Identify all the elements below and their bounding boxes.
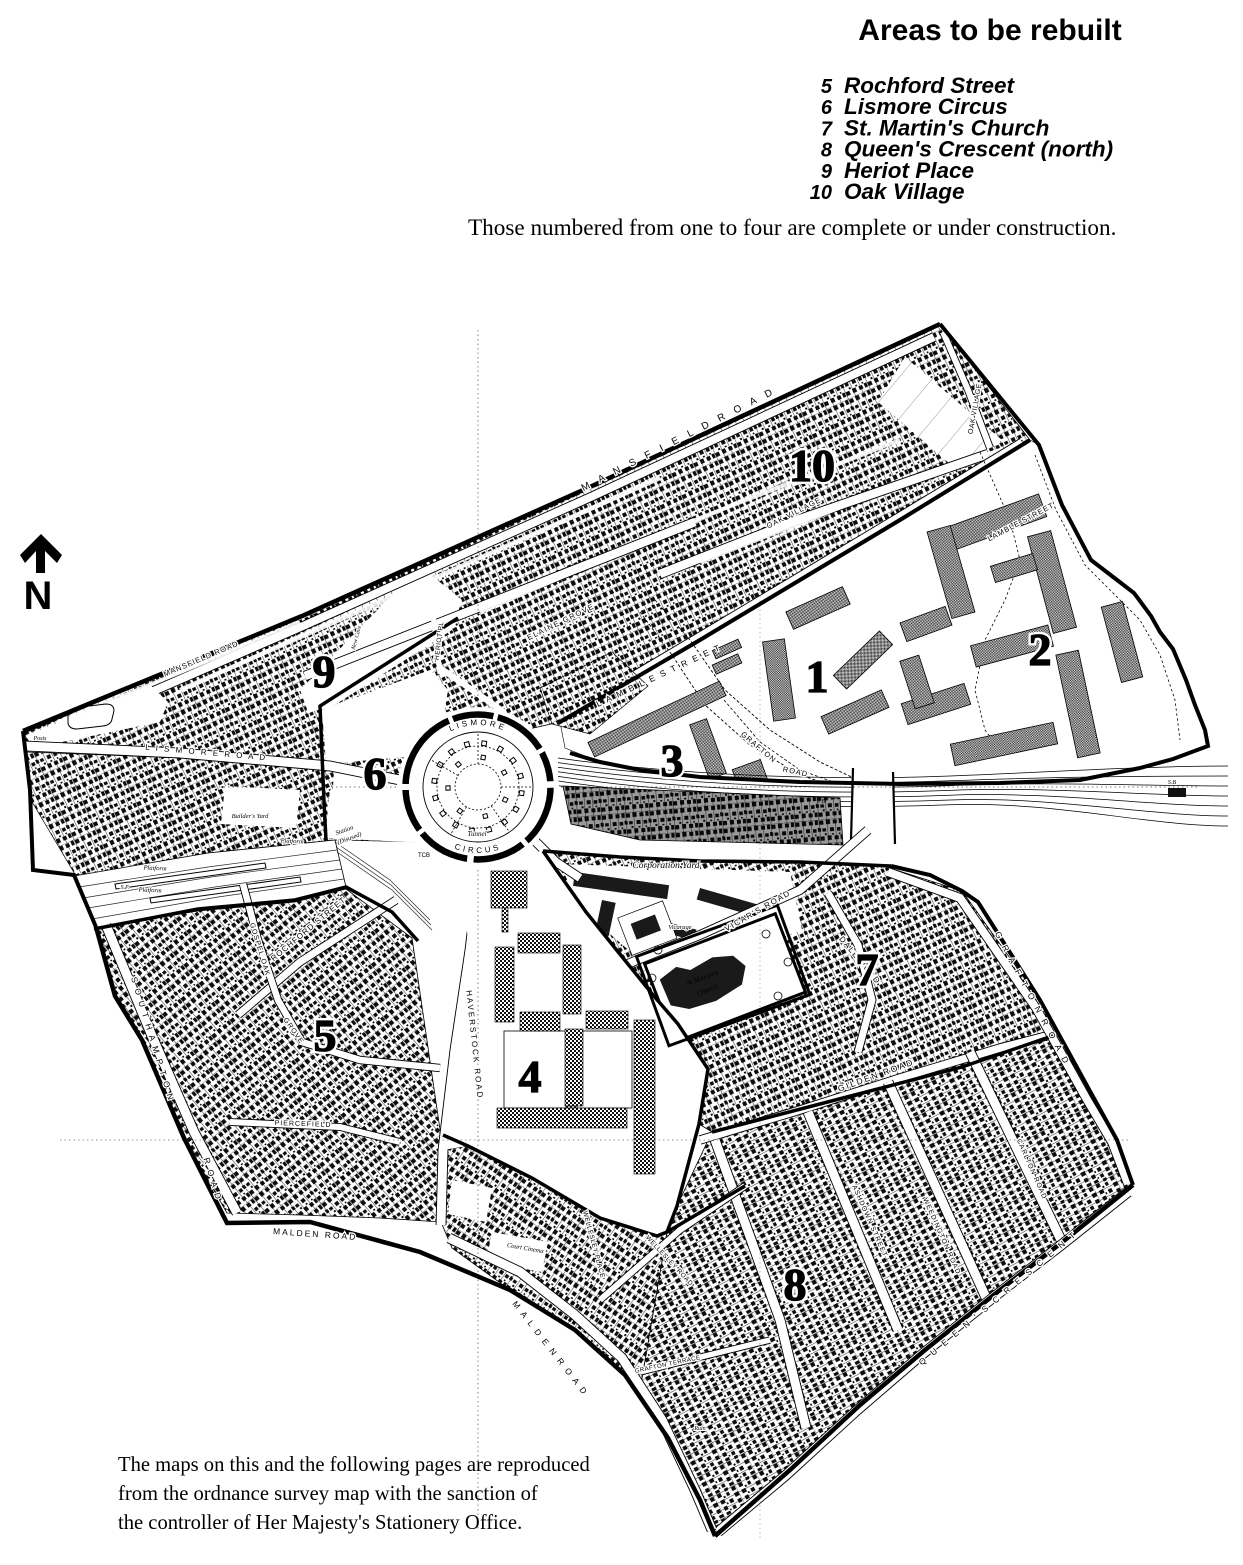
svg-text:10: 10 <box>789 440 835 491</box>
svg-text:Platform: Platform <box>142 864 167 872</box>
svg-text:S.B: S.B <box>1168 780 1177 786</box>
svg-text:9: 9 <box>313 646 336 697</box>
svg-text:Those numbered from one to fou: Those numbered from one to four are comp… <box>468 215 1116 241</box>
svg-text:4: 4 <box>519 1051 542 1102</box>
svg-text:2: 2 <box>1029 624 1052 675</box>
svg-text:Posts: Posts <box>32 736 47 742</box>
svg-text:Platform: Platform <box>279 837 304 845</box>
svg-text:10: 10 <box>810 182 832 204</box>
svg-text:6: 6 <box>821 97 833 119</box>
svg-text:Platform: Platform <box>137 886 162 894</box>
svg-text:5: 5 <box>314 1010 337 1061</box>
svg-text:N: N <box>24 574 53 618</box>
svg-text:TCB: TCB <box>418 853 430 859</box>
svg-text:7: 7 <box>856 944 879 995</box>
svg-text:The maps on this and the follo: The maps on this and the following pages… <box>118 1454 590 1476</box>
svg-text:1: 1 <box>806 651 829 702</box>
svg-text:S.P.: S.P. <box>121 885 130 891</box>
svg-text:Vicarage: Vicarage <box>668 924 691 931</box>
svg-text:Tunnel: Tunnel <box>467 830 486 838</box>
svg-text:the controller of Her Majesty': the controller of Her Majesty's Statione… <box>118 1512 522 1534</box>
svg-text:3: 3 <box>661 735 684 786</box>
svg-text:from the ordnance survey map w: from the ordnance survey map with the sa… <box>118 1483 538 1505</box>
svg-text:8: 8 <box>821 140 833 162</box>
svg-text:9: 9 <box>821 161 833 183</box>
svg-text:Ruin: Ruin <box>693 1426 705 1432</box>
svg-text:6: 6 <box>364 748 387 799</box>
svg-text:Builder's Yard: Builder's Yard <box>232 813 270 820</box>
svg-text:Corporation Yard: Corporation Yard <box>632 861 699 871</box>
svg-text:5: 5 <box>821 76 833 98</box>
svg-text:7: 7 <box>821 118 833 140</box>
svg-text:8: 8 <box>784 1259 807 1310</box>
svg-text:Areas to be rebuilt: Areas to be rebuilt <box>858 14 1121 47</box>
svg-text:Oak Village: Oak Village <box>844 179 964 204</box>
svg-text:S Br: S Br <box>817 799 828 805</box>
